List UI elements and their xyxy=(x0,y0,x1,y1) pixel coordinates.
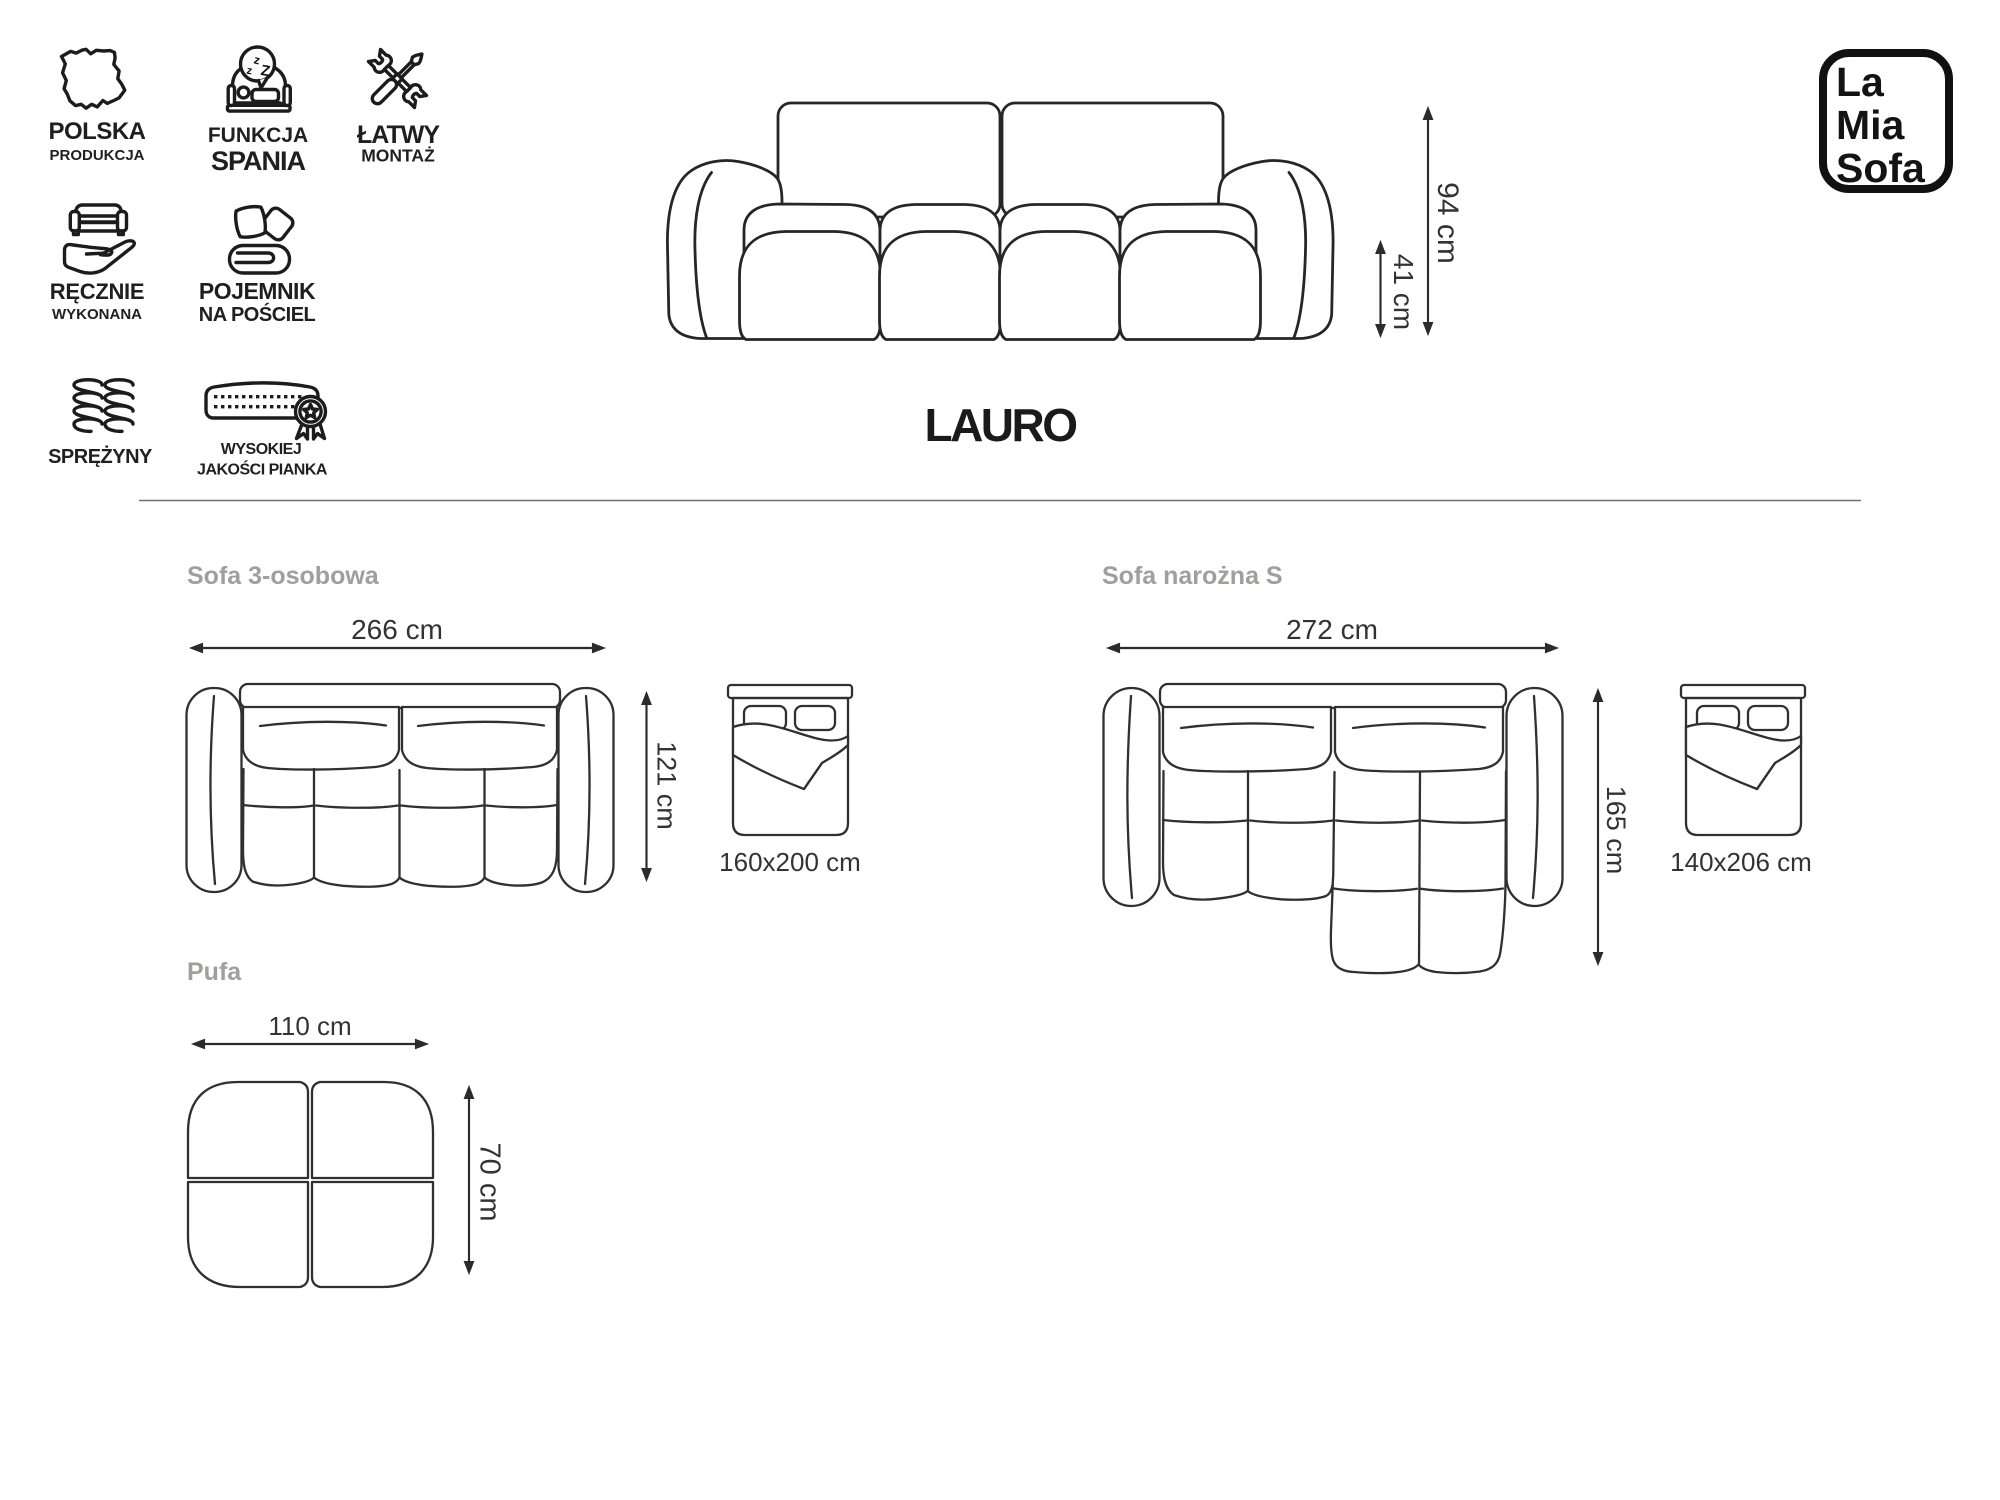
svg-text:LAURO: LAURO xyxy=(924,399,1076,451)
svg-text:110 cm: 110 cm xyxy=(268,1011,351,1041)
svg-text:Sofa: Sofa xyxy=(1836,145,1926,191)
svg-text:SPRĘŻYNY: SPRĘŻYNY xyxy=(48,445,153,468)
svg-text:Mia: Mia xyxy=(1836,102,1906,148)
svg-text:Sofa narożna S: Sofa narożna S xyxy=(1102,562,1283,590)
svg-text:41 cm: 41 cm xyxy=(1388,254,1419,330)
svg-text:POJEMNIK: POJEMNIK xyxy=(199,278,316,304)
svg-text:WYKONANA: WYKONANA xyxy=(52,306,142,323)
svg-text:Sofa 3-osobowa: Sofa 3-osobowa xyxy=(187,562,380,590)
svg-text:140x206 cm: 140x206 cm xyxy=(1670,847,1812,877)
svg-text:JAKOŚCI PIANKA: JAKOŚCI PIANKA xyxy=(197,460,328,479)
svg-text:Pufa: Pufa xyxy=(187,958,242,986)
svg-text:165 cm: 165 cm xyxy=(1601,786,1631,875)
svg-text:FUNKCJA: FUNKCJA xyxy=(208,124,308,147)
svg-text:94 cm: 94 cm xyxy=(1431,182,1464,264)
svg-text:NA POŚCIEL: NA POŚCIEL xyxy=(199,302,316,326)
svg-text:PRODUKCJA: PRODUKCJA xyxy=(49,147,144,164)
svg-text:121 cm: 121 cm xyxy=(652,741,682,830)
svg-text:266 cm: 266 cm xyxy=(351,614,443,645)
svg-text:WYSOKIEJ: WYSOKIEJ xyxy=(221,441,301,458)
svg-text:272 cm: 272 cm xyxy=(1286,614,1378,645)
svg-text:70 cm: 70 cm xyxy=(474,1143,506,1222)
svg-text:POLSKA: POLSKA xyxy=(48,118,145,145)
svg-text:SPANIA: SPANIA xyxy=(211,146,306,176)
svg-text:160x200 cm: 160x200 cm xyxy=(719,847,861,877)
svg-text:MONTAŻ: MONTAŻ xyxy=(361,146,435,166)
svg-text:RĘCZNIE: RĘCZNIE xyxy=(50,279,144,304)
svg-text:La: La xyxy=(1836,59,1885,105)
